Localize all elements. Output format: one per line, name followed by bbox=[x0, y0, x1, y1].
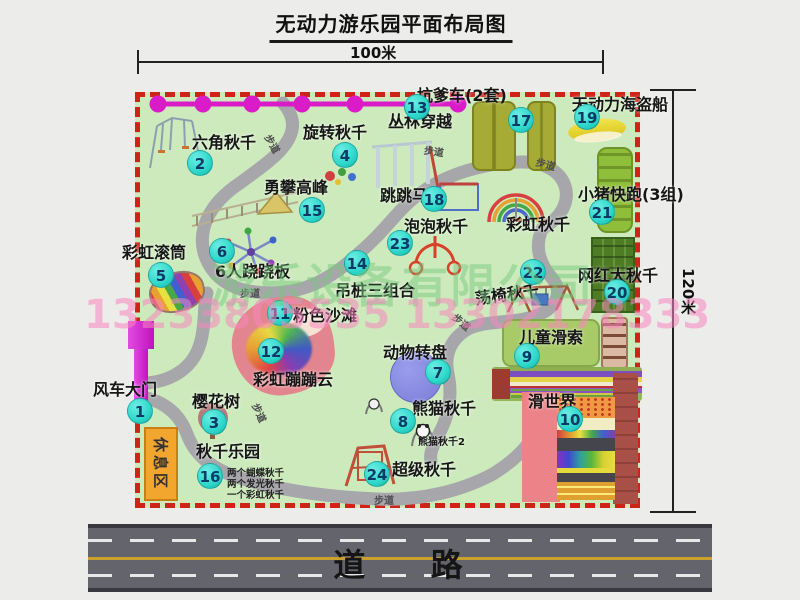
walkway-label: 步道 bbox=[240, 285, 260, 300]
pig-run-badge: 21 bbox=[589, 199, 615, 225]
swing-park-note: 一个彩虹秋千 bbox=[227, 487, 284, 501]
dim-top-tick-right bbox=[602, 50, 604, 74]
zipline-tower-icon bbox=[601, 317, 628, 369]
swing-park-label: 秋千乐园 bbox=[196, 443, 260, 461]
rainbow-cloud-badge: 12 bbox=[258, 338, 284, 364]
dim-right-line bbox=[672, 90, 674, 512]
pink-beach-label: 粉色沙滩 bbox=[293, 307, 357, 325]
hanging-posts-label: 吊桩三组合 bbox=[335, 282, 415, 300]
panda-swing-badge: 8 bbox=[390, 408, 416, 434]
pit-cars-label: 坑爹车(2套) bbox=[417, 87, 507, 105]
hanging-posts-badge: 14 bbox=[344, 250, 370, 276]
seesaw-6p-badge: 6 bbox=[209, 238, 235, 264]
cherry-tree-badge: 3 bbox=[201, 409, 227, 435]
rainbow-cloud-label: 彩虹蹦蹦云 bbox=[253, 371, 333, 389]
hex-swing-badge: 2 bbox=[187, 150, 213, 176]
brave-climb-badge: 15 bbox=[299, 197, 325, 223]
rainbow-roller-label: 彩虹滚筒 bbox=[122, 244, 186, 262]
bubble-swing-badge: 23 bbox=[387, 230, 413, 256]
page-title: 无动力游乐园平面布局图 bbox=[270, 8, 513, 43]
super-swing-badge: 24 bbox=[364, 461, 390, 487]
hex-swing-label: 六角秋千 bbox=[192, 134, 256, 152]
rainbow-swing-label: 彩虹秋千 bbox=[506, 216, 570, 234]
rest-area-label: 休息区 bbox=[151, 437, 172, 491]
walkway-label: 步道 bbox=[374, 492, 394, 507]
road-label: 道 路 bbox=[88, 540, 712, 586]
pink-beach-badge: 11 bbox=[267, 300, 293, 326]
spin-swing-label: 旋转秋千 bbox=[303, 124, 367, 142]
zipline-block-icon bbox=[492, 369, 510, 399]
pit-cars-badge: 17 bbox=[508, 107, 534, 133]
panda-swing-2-label: 熊猫秋千2 bbox=[418, 437, 465, 448]
windmill-gate-badge: 1 bbox=[127, 398, 153, 424]
bubble-swing-label: 泡泡秋千 bbox=[404, 218, 468, 236]
screenshot-root: 无动力游乐园平面布局图 100米 120米 bbox=[0, 0, 800, 600]
pirate-ship-badge: 19 bbox=[574, 104, 600, 130]
road: 道 路 bbox=[88, 524, 712, 592]
panda-swing-label: 熊猫秋千 bbox=[412, 400, 476, 418]
dim-right-tick-bottom bbox=[650, 511, 696, 513]
jungle-crossing-badge: 13 bbox=[404, 94, 430, 120]
dim-height-label: 120米 bbox=[678, 268, 699, 314]
big-swing-badge: 20 bbox=[604, 279, 630, 305]
seesaw-6p-label: 6人跷跷板 bbox=[215, 263, 290, 281]
brave-climb-label: 勇攀高峰 bbox=[264, 179, 328, 197]
animal-turntable-badge: 7 bbox=[425, 359, 451, 385]
windmill-gate-label: 风车大门 bbox=[93, 381, 157, 399]
slide-world-right-icon bbox=[613, 373, 638, 504]
windmill-gate-top-icon bbox=[128, 321, 154, 349]
rainbow-roller-badge: 5 bbox=[148, 262, 174, 288]
swing-park-badge: 16 bbox=[197, 463, 223, 489]
chair-swing-badge: 22 bbox=[520, 259, 546, 285]
jump-horse-badge: 18 bbox=[421, 186, 447, 212]
dim-top-tick-left bbox=[137, 50, 139, 74]
dim-width-label: 100米 bbox=[350, 42, 396, 63]
rest-area: 休息区 bbox=[144, 427, 178, 501]
kids-zipline-badge: 9 bbox=[514, 343, 540, 369]
dim-right-tick-top bbox=[650, 89, 696, 91]
super-swing-label: 超级秋千 bbox=[392, 461, 456, 479]
cherry-tree-label: 樱花树 bbox=[192, 393, 240, 411]
spin-swing-badge: 4 bbox=[332, 142, 358, 168]
slide-world-badge: 10 bbox=[557, 406, 583, 432]
walkway-label: 步道 bbox=[423, 142, 445, 160]
